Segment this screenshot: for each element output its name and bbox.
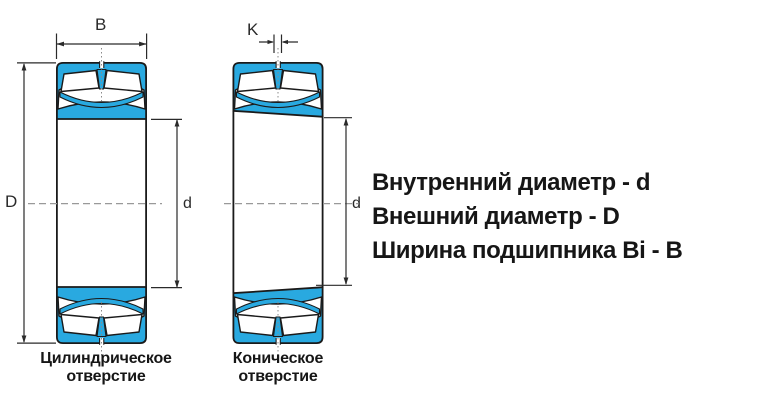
caption-tapered-bore: Коническое отверстие	[203, 350, 353, 386]
dim-K-lines	[259, 35, 298, 54]
legend-bearing-width: Ширина подшипника Bi - B	[372, 234, 682, 268]
caption-cylindrical-bore: Цилиндрическое отверстие	[16, 350, 196, 386]
caption-cylindrical-line2: отверстие	[16, 368, 196, 386]
dim-B-lines	[57, 34, 147, 60]
caption-cylindrical-line1: Цилиндрическое	[16, 350, 196, 368]
legend-inner-diameter: Внутренний диаметр - d	[372, 166, 682, 200]
dim-K-label: K	[247, 21, 258, 38]
dim-d-right-lines	[316, 118, 352, 286]
caption-tapered-line1: Коническое	[203, 350, 353, 368]
dim-B-label: B	[95, 16, 106, 33]
dim-d-left-label: d	[183, 195, 192, 212]
legend-outer-diameter: Внешний диаметр - D	[372, 200, 682, 234]
legend-block: Внутренний диаметр - d Внешний диаметр -…	[372, 166, 682, 268]
bearing-dimensions-figure: B K D d d Цилиндрическое отверстие Конич…	[0, 0, 762, 408]
dim-d-right-label: d	[352, 195, 361, 212]
dim-D-label: D	[5, 193, 17, 210]
caption-tapered-line2: отверстие	[203, 368, 353, 386]
